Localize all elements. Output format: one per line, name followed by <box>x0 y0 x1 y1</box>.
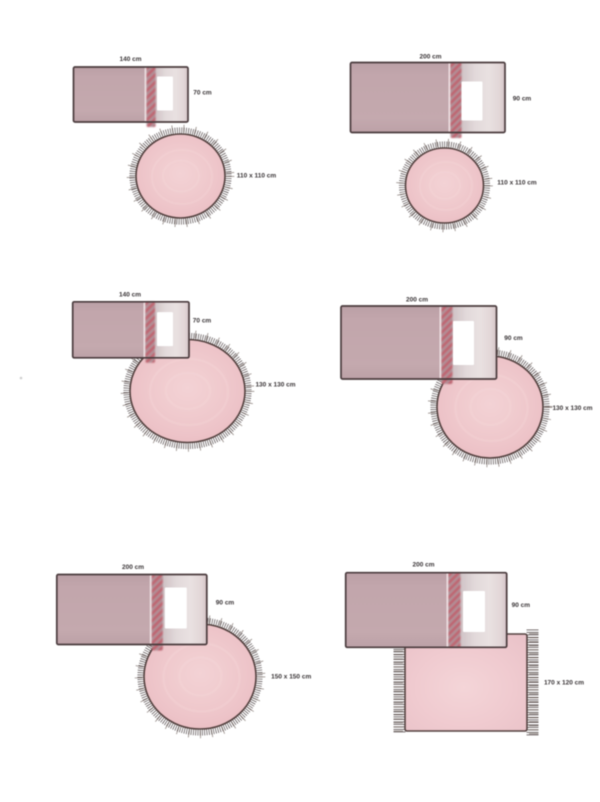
svg-text:70 cm: 70 cm <box>193 317 212 324</box>
svg-text:200 cm: 200 cm <box>122 564 144 571</box>
svg-text:130 x 130 cm: 130 x 130 cm <box>552 405 592 412</box>
svg-text:140 cm: 140 cm <box>119 56 141 63</box>
svg-text:90 cm: 90 cm <box>216 600 235 607</box>
svg-text:90 cm: 90 cm <box>504 335 523 342</box>
svg-text:170 x 120 cm: 170 x 120 cm <box>544 680 584 687</box>
svg-text:200 cm: 200 cm <box>419 53 441 60</box>
svg-text:110 x 110 cm: 110 x 110 cm <box>237 173 277 180</box>
svg-text:90 cm: 90 cm <box>513 96 532 103</box>
svg-text:90 cm: 90 cm <box>512 602 531 609</box>
svg-text:110 x 110 cm: 110 x 110 cm <box>497 179 537 186</box>
svg-text:200 cm: 200 cm <box>412 561 434 568</box>
svg-text:200 cm: 200 cm <box>406 297 428 304</box>
svg-text:130 x 130 cm: 130 x 130 cm <box>255 382 295 389</box>
svg-text:140 cm: 140 cm <box>119 291 141 298</box>
svg-text:70 cm: 70 cm <box>193 89 212 96</box>
svg-text:150 x 150 cm: 150 x 150 cm <box>271 673 311 680</box>
